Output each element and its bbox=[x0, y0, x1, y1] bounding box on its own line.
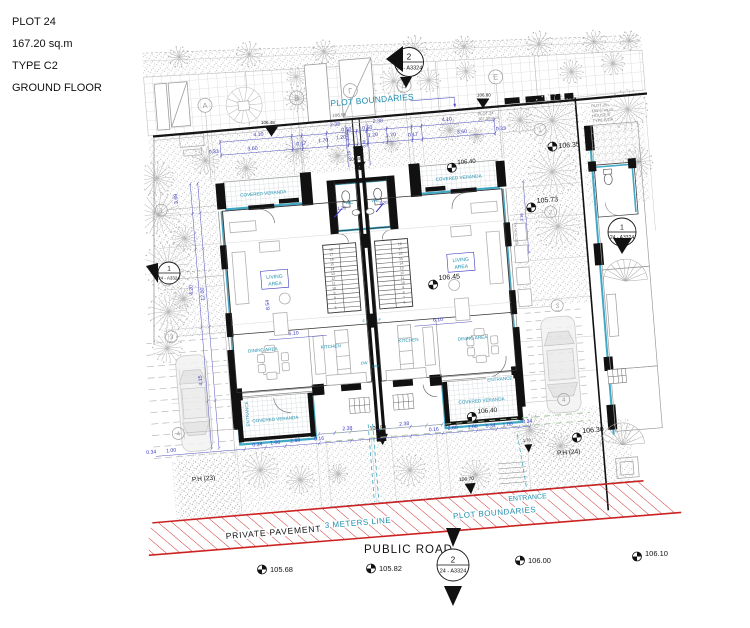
svg-text:A: A bbox=[202, 101, 208, 110]
svg-text:PLOT 24: PLOT 24 bbox=[12, 16, 56, 28]
svg-text:16: 16 bbox=[398, 252, 402, 256]
svg-text:1.20: 1.20 bbox=[368, 132, 379, 139]
svg-text:0.16: 0.16 bbox=[314, 436, 325, 443]
svg-text:DW: DW bbox=[361, 360, 368, 366]
svg-text:2.60: 2.60 bbox=[447, 425, 458, 432]
svg-text:1.20: 1.20 bbox=[337, 205, 347, 211]
svg-text:13: 13 bbox=[331, 272, 335, 276]
svg-text:GROUND FLOOR: GROUND FLOOR bbox=[12, 82, 102, 94]
svg-text:18: 18 bbox=[398, 242, 402, 246]
svg-text:17: 17 bbox=[398, 247, 402, 251]
svg-text:4.10: 4.10 bbox=[253, 132, 264, 139]
svg-text:1.20: 1.20 bbox=[336, 135, 347, 142]
svg-text:4.20: 4.20 bbox=[188, 285, 195, 296]
svg-text:1: 1 bbox=[167, 266, 171, 273]
svg-text:106.70: 106.70 bbox=[459, 476, 475, 483]
svg-text:14: 14 bbox=[330, 267, 334, 271]
svg-text:17: 17 bbox=[329, 252, 333, 256]
svg-text:15: 15 bbox=[399, 257, 403, 261]
svg-text:AREA: AREA bbox=[454, 264, 469, 271]
svg-text:105.68: 105.68 bbox=[270, 565, 293, 574]
svg-text:11: 11 bbox=[401, 276, 405, 280]
svg-text:1.70: 1.70 bbox=[523, 437, 532, 443]
svg-text:0.33: 0.33 bbox=[209, 149, 220, 156]
svg-text:12.00: 12.00 bbox=[200, 287, 207, 301]
svg-text:13: 13 bbox=[400, 266, 404, 270]
svg-text:1.20: 1.20 bbox=[379, 200, 389, 206]
svg-text:106.00: 106.00 bbox=[528, 556, 551, 565]
svg-text:10: 10 bbox=[332, 286, 336, 290]
svg-text:0.48: 0.48 bbox=[362, 140, 367, 148]
svg-text:15: 15 bbox=[330, 262, 334, 266]
svg-text:TYPE C2: TYPE C2 bbox=[12, 60, 58, 72]
svg-text:4.10: 4.10 bbox=[442, 117, 453, 124]
svg-text:24 - A3324: 24 - A3324 bbox=[158, 276, 180, 281]
svg-text:14: 14 bbox=[399, 261, 403, 265]
svg-text:10: 10 bbox=[401, 281, 405, 285]
svg-text:3.68: 3.68 bbox=[173, 194, 180, 205]
svg-text:2.60: 2.60 bbox=[290, 438, 301, 445]
svg-text:2: 2 bbox=[451, 556, 456, 565]
svg-text:1.00: 1.00 bbox=[270, 440, 281, 447]
svg-text:2.38: 2.38 bbox=[373, 118, 384, 125]
svg-text:E: E bbox=[493, 72, 499, 81]
svg-text:8.54: 8.54 bbox=[265, 299, 272, 310]
svg-text:AREA: AREA bbox=[268, 281, 283, 288]
svg-text:PUBLIC ROAD: PUBLIC ROAD bbox=[364, 544, 453, 556]
svg-text:4.15: 4.15 bbox=[198, 375, 205, 386]
svg-text:Γ: Γ bbox=[348, 86, 353, 95]
svg-text:DW: DW bbox=[372, 363, 379, 369]
svg-text:1.70: 1.70 bbox=[386, 132, 397, 139]
svg-text:3.60: 3.60 bbox=[457, 129, 468, 136]
svg-text:106.48: 106.48 bbox=[261, 120, 275, 125]
svg-text:12: 12 bbox=[331, 277, 335, 281]
svg-text:3.60: 3.60 bbox=[247, 146, 258, 153]
svg-text:24 - A3324: 24 - A3324 bbox=[440, 569, 467, 575]
svg-text:3.18: 3.18 bbox=[519, 212, 525, 221]
svg-text:0.34: 0.34 bbox=[522, 419, 533, 426]
svg-text:1.70: 1.70 bbox=[318, 138, 329, 145]
svg-text:18: 18 bbox=[329, 248, 333, 252]
svg-text:2.38: 2.38 bbox=[399, 421, 410, 428]
svg-text:6.10: 6.10 bbox=[288, 331, 299, 338]
svg-text:12: 12 bbox=[400, 271, 404, 275]
svg-text:0.50: 0.50 bbox=[341, 127, 352, 134]
svg-text:0.17: 0.17 bbox=[408, 132, 419, 139]
svg-text:106.10: 106.10 bbox=[645, 549, 668, 558]
svg-text:WC: WC bbox=[345, 200, 354, 206]
svg-text:106.80: 106.80 bbox=[477, 93, 491, 98]
svg-text:0.33: 0.33 bbox=[496, 126, 507, 133]
svg-text:6.10: 6.10 bbox=[433, 317, 444, 324]
svg-text:16: 16 bbox=[330, 257, 334, 261]
svg-text:0.34: 0.34 bbox=[146, 449, 157, 456]
svg-text:2: 2 bbox=[407, 53, 412, 62]
svg-text:0.34: 0.34 bbox=[252, 442, 263, 449]
svg-text:B: B bbox=[294, 93, 300, 102]
svg-text:1.00: 1.00 bbox=[502, 422, 513, 429]
svg-text:11: 11 bbox=[332, 281, 336, 285]
svg-text:1.00: 1.00 bbox=[166, 448, 177, 455]
svg-text:1: 1 bbox=[620, 225, 624, 232]
svg-text:167.20 sq.m: 167.20 sq.m bbox=[12, 38, 73, 50]
svg-text:105.82: 105.82 bbox=[379, 564, 402, 573]
svg-text:0.17: 0.17 bbox=[296, 141, 307, 148]
